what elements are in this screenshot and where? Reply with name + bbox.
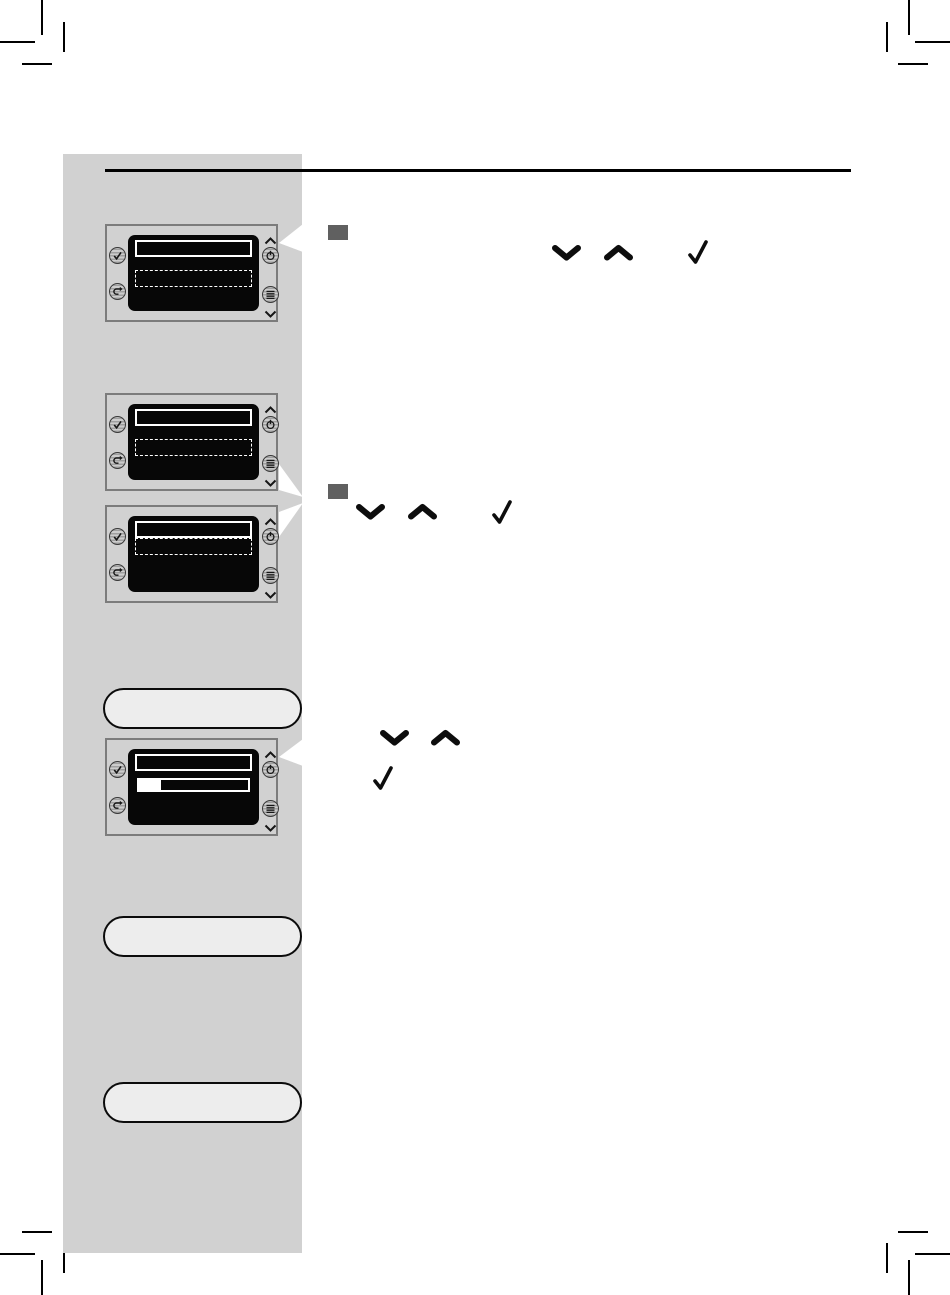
chevron-up-icon bbox=[408, 503, 437, 525]
menu-row-selected bbox=[135, 521, 252, 538]
crop-mark bbox=[41, 1260, 43, 1295]
standby-button-icon bbox=[262, 247, 279, 264]
crop-mark bbox=[22, 1231, 52, 1233]
status-row bbox=[135, 754, 252, 771]
step-bullet bbox=[328, 225, 348, 240]
progress-bar-fill bbox=[139, 780, 161, 790]
crop-mark bbox=[63, 22, 65, 52]
chevron-down-icon bbox=[264, 819, 277, 827]
callout-pill bbox=[103, 1082, 302, 1123]
chevron-down-icon bbox=[552, 244, 581, 266]
ok-button-icon bbox=[109, 247, 126, 264]
check-icon bbox=[491, 499, 513, 530]
ok-button-icon bbox=[109, 528, 126, 545]
standby-button-icon bbox=[262, 761, 279, 778]
device-display bbox=[128, 404, 259, 480]
esc-button-icon bbox=[109, 452, 126, 469]
callout-pill bbox=[103, 916, 302, 957]
device-control-panel-illustration bbox=[105, 738, 278, 836]
esc-button-icon bbox=[109, 797, 126, 814]
chevron-down-icon bbox=[380, 729, 409, 751]
device-control-panel-illustration bbox=[105, 505, 278, 603]
manual-page bbox=[0, 0, 950, 1295]
crop-mark bbox=[0, 41, 35, 43]
menu-button-icon bbox=[262, 567, 279, 584]
chevron-up-icon bbox=[604, 244, 633, 266]
device-display bbox=[128, 516, 259, 592]
standby-button-icon bbox=[262, 528, 279, 545]
menu-button-icon bbox=[262, 800, 279, 817]
check-icon bbox=[687, 239, 709, 270]
crop-mark bbox=[0, 1253, 35, 1255]
crop-mark bbox=[886, 22, 888, 52]
crop-mark bbox=[898, 63, 928, 65]
crop-mark bbox=[908, 1260, 910, 1295]
chevron-down-icon bbox=[264, 474, 277, 482]
chevron-down-icon bbox=[264, 305, 277, 313]
chevron-up-icon bbox=[431, 729, 460, 751]
menu-row-unselected bbox=[135, 439, 252, 456]
chevron-down-icon bbox=[356, 503, 385, 525]
ok-button-icon bbox=[109, 761, 126, 778]
chevron-up-icon bbox=[264, 513, 277, 521]
menu-button-icon bbox=[262, 286, 279, 303]
crop-mark bbox=[22, 63, 52, 65]
standby-button-icon bbox=[262, 416, 279, 433]
device-display bbox=[128, 749, 259, 825]
crop-mark bbox=[915, 41, 950, 43]
menu-row-unselected bbox=[135, 538, 252, 555]
chevron-up-icon bbox=[264, 746, 277, 754]
chevron-down-icon bbox=[264, 586, 277, 594]
chevron-up-icon bbox=[264, 232, 277, 240]
crop-mark bbox=[908, 0, 910, 35]
crop-mark bbox=[886, 1243, 888, 1273]
header-rule bbox=[105, 169, 851, 172]
chevron-up-icon bbox=[264, 401, 277, 409]
step-bullet bbox=[328, 484, 348, 499]
device-control-panel-illustration bbox=[105, 224, 278, 322]
crop-mark bbox=[41, 0, 43, 35]
progress-bar bbox=[137, 778, 250, 792]
check-icon bbox=[372, 765, 394, 796]
menu-button-icon bbox=[262, 455, 279, 472]
crop-mark bbox=[898, 1231, 928, 1233]
ok-button-icon bbox=[109, 416, 126, 433]
esc-button-icon bbox=[109, 283, 126, 300]
device-control-panel-illustration bbox=[105, 393, 278, 491]
crop-mark bbox=[915, 1253, 950, 1255]
menu-row-unselected bbox=[135, 270, 252, 287]
menu-row-selected bbox=[135, 409, 252, 426]
esc-button-icon bbox=[109, 564, 126, 581]
menu-row-selected bbox=[135, 240, 252, 257]
callout-pill bbox=[103, 688, 302, 729]
device-display bbox=[128, 235, 259, 311]
